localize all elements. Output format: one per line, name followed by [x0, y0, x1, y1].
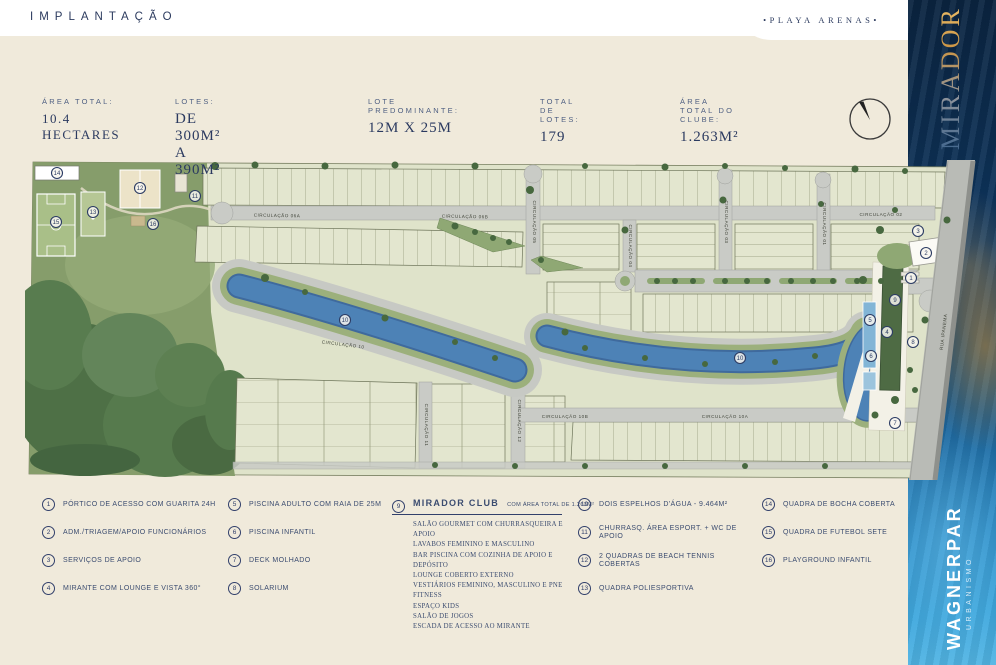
legend-item: 6 PISCINA INFANTIL: [228, 526, 384, 539]
legend-number-badge: 15: [762, 526, 775, 539]
map-marker-8: 8: [908, 337, 919, 348]
road-label: CIRCULAÇÃO 10A: [702, 413, 749, 419]
legend-item: 16 PLAYGROUND INFANTIL: [762, 554, 907, 567]
stat-value: 10.4 HECTARES: [42, 111, 120, 143]
map-marker-13: 13: [88, 207, 99, 218]
road-label: CIRCULAÇÃO 04: [628, 224, 634, 267]
map-marker-10: 10: [735, 353, 746, 364]
legend-item: 2 ADM./TRIAGEM/APOIO FUNCIONÁRIOS: [42, 526, 220, 539]
legend-item-label: QUADRA DE BOCHA COBERTA: [783, 501, 895, 509]
map-marker-1: 1: [906, 273, 917, 284]
club-feature: ESCADA DE ACESSO AO MIRANTE: [413, 622, 572, 632]
legend-number-badge: 2: [42, 526, 55, 539]
legend-item-label: SOLARIUM: [249, 585, 289, 593]
road-label: CIRCULAÇÃO 06B: [442, 213, 489, 220]
developer-name-vertical: WAGNERPAR: [944, 500, 965, 650]
map-marker-9: 9: [890, 295, 901, 306]
legend-item: 13 QUADRA POLIESPORTIVA: [578, 582, 754, 595]
legend-item-label: QUADRA POLIESPORTIVA: [599, 585, 694, 593]
project-badge-label: •PLAYA ARENAS•: [763, 15, 880, 25]
legend-item: 1 PÓRTICO DE ACESSO COM GUARITA 24H: [42, 498, 220, 511]
legend-item-label: PÓRTICO DE ACESSO COM GUARITA 24H: [63, 501, 216, 509]
map-marker-6: 6: [866, 351, 877, 362]
stat-predominant-lot: LOTE PREDOMINANTE: 12M X 25M: [368, 97, 459, 137]
map-marker-11: 11: [190, 191, 201, 202]
legend-item-label: PISCINA ADULTO COM RAIA DE 25M: [249, 501, 381, 509]
legend-item: 10 DOIS ESPELHOS D'ÁGUA - 9.464M²: [578, 498, 754, 511]
legend-item: 5 PISCINA ADULTO COM RAIA DE 25M: [228, 498, 384, 511]
legend-number-badge: 12: [578, 554, 591, 567]
stat-label: LOTE PREDOMINANTE:: [368, 97, 459, 115]
map-marker-12: 12: [135, 183, 146, 194]
legend-number-badge: 3: [42, 554, 55, 567]
legend-item: 4 MIRANTE COM LOUNGE E VISTA 360°: [42, 582, 220, 595]
club-title: MIRADOR CLUB: [413, 498, 499, 508]
site-plan-map: CIRCULAÇÃO 06ACIRCULAÇÃO 06BCIRCULAÇÃO 0…: [25, 160, 990, 480]
club-feature: ESPAÇO KIDS: [413, 602, 572, 612]
kids-pool: [863, 372, 876, 390]
road-label: CIRCULAÇÃO 01: [822, 202, 828, 245]
legend-item-label: CHURRASQ. ÁREA ESPORT. + WC DE APOIO: [599, 525, 754, 540]
developer-tagline-vertical: URBANISMO: [966, 490, 973, 630]
legend-item-label: ADM./TRIAGEM/APOIO FUNCIONÁRIOS: [63, 529, 206, 537]
svg-text:14: 14: [54, 171, 61, 177]
stat-label: ÁREA TOTAL DO CLUBE:: [680, 97, 739, 124]
club-feature: LOUNGE COBERTO EXTERNO: [413, 571, 572, 581]
stat-lot-sizes: LOTES: DE 300M² A 390M²: [175, 97, 220, 179]
legend-column-4: 10 DOIS ESPELHOS D'ÁGUA - 9.464M² 11 CHU…: [578, 498, 754, 610]
legend-item: 7 DECK MOLHADO: [228, 554, 384, 567]
legend-column-5: 14 QUADRA DE BOCHA COBERTA 15 QUADRA DE …: [762, 498, 907, 582]
legend-number-badge: 1: [42, 498, 55, 511]
club-feature-list: SALÃO GOURMET COM CHURRASQUEIRA E APOIO …: [413, 520, 572, 632]
club-feature: SALÃO DE JOGOS: [413, 612, 572, 622]
north-compass-icon: [847, 96, 893, 147]
legend-item-label: PLAYGROUND INFANTIL: [783, 557, 872, 565]
legend-item-label: SERVIÇOS DE APOIO: [63, 557, 141, 565]
legend-column-2: 5 PISCINA ADULTO COM RAIA DE 25M 6 PISCI…: [228, 498, 384, 610]
stat-value: 12M X 25M: [368, 120, 459, 137]
road-label: CIRCULAÇÃO 06A: [254, 212, 301, 219]
road-label: CIRCULAÇÃO 12: [517, 399, 523, 442]
stat-label: ÁREA TOTAL:: [42, 97, 120, 106]
road-label: CIRCULAÇÃO 05: [532, 200, 538, 243]
stat-club-area: ÁREA TOTAL DO CLUBE: 1.263M²: [680, 97, 739, 146]
map-marker-10: 10: [340, 315, 351, 326]
stat-value: DE 300M² A 390M²: [175, 111, 220, 179]
legend-item-label: DOIS ESPELHOS D'ÁGUA - 9.464M²: [599, 501, 727, 509]
club-legend-header: 9 MIRADOR CLUB COM ÁREA TOTAL DE 1.263M²: [392, 498, 562, 515]
legend-number-badge: 13: [578, 582, 591, 595]
stat-label: LOTES:: [175, 97, 220, 106]
map-marker-7: 7: [890, 418, 901, 429]
map-marker-15: 15: [51, 217, 62, 228]
legend-item: 14 QUADRA DE BOCHA COBERTA: [762, 498, 907, 511]
stat-total-lots: TOTAL DE LOTES: 179: [540, 97, 580, 146]
legend-column-1: 1 PÓRTICO DE ACESSO COM GUARITA 24H 2 AD…: [42, 498, 220, 610]
svg-text:10: 10: [737, 356, 744, 362]
page-title: IMPLANTAÇÃO: [30, 11, 178, 23]
legend-item-label: QUADRA DE FUTEBOL SETE: [783, 529, 887, 537]
stat-value: 179: [540, 129, 580, 146]
legend-number-badge: 9: [392, 500, 405, 513]
legend-item: 12 2 QUADRAS DE BEACH TENNIS COBERTAS: [578, 554, 754, 567]
brand-name-vertical: MIRADOR: [936, 0, 966, 150]
club-feature: FITNESS: [413, 591, 572, 601]
club-feature: VESTIÁRIOS FEMININO, MASCULINO E PNE: [413, 581, 572, 591]
map-marker-16: 16: [148, 219, 159, 230]
masterplan-page: MIRADOR WAGNERPAR URBANISMO IMPLANTAÇÃO …: [0, 0, 996, 665]
svg-text:15: 15: [53, 220, 60, 226]
legend-item-label: PISCINA INFANTIL: [249, 529, 316, 537]
club-feature: SALÃO GOURMET COM CHURRASQUEIRA E APOIO: [413, 520, 572, 540]
legend-number-badge: 10: [578, 498, 591, 511]
legend-number-badge: 8: [228, 582, 241, 595]
road-label: CIRCULAÇÃO 11: [424, 404, 430, 447]
map-marker-5: 5: [865, 315, 876, 326]
map-marker-14: 14: [52, 168, 63, 179]
road-label: CIRCULAÇÃO 03: [724, 200, 730, 243]
legend-column-club: 9 MIRADOR CLUB COM ÁREA TOTAL DE 1.263M²…: [392, 498, 572, 632]
legend-item: 11 CHURRASQ. ÁREA ESPORT. + WC DE APOIO: [578, 526, 754, 539]
svg-text:11: 11: [192, 194, 199, 200]
svg-text:13: 13: [90, 210, 97, 216]
legend-item-label: MIRANTE COM LOUNGE E VISTA 360°: [63, 585, 201, 593]
legend-item-label: DECK MOLHADO: [249, 557, 311, 565]
stat-total-area: ÁREA TOTAL: 10.4 HECTARES: [42, 97, 120, 143]
legend-number-badge: 7: [228, 554, 241, 567]
road-label: CIRCULAÇÃO 10B: [542, 413, 589, 419]
legend-number-badge: 4: [42, 582, 55, 595]
stat-label: TOTAL DE LOTES:: [540, 97, 580, 124]
club-feature: BAR PISCINA COM COZINHA DE APOIO E DEPÓS…: [413, 551, 572, 571]
legend-item-label: 2 QUADRAS DE BEACH TENNIS COBERTAS: [599, 553, 754, 568]
svg-text:12: 12: [137, 186, 144, 192]
svg-text:16: 16: [150, 222, 157, 228]
legend-item: 8 SOLARIUM: [228, 582, 384, 595]
map-marker-2: 2: [921, 248, 932, 259]
legend-number-badge: 6: [228, 526, 241, 539]
playground: [131, 216, 145, 226]
legend-number-badge: 14: [762, 498, 775, 511]
map-marker-3: 3: [913, 226, 924, 237]
legend-item: 15 QUADRA DE FUTEBOL SETE: [762, 526, 907, 539]
road-label: CIRCULAÇÃO 02: [859, 211, 902, 217]
map-marker-4: 4: [882, 327, 893, 338]
legend-number-badge: 5: [228, 498, 241, 511]
project-badge: •PLAYA ARENAS•: [735, 0, 908, 40]
legend-number-badge: 11: [578, 526, 591, 539]
club-feature: LAVABOS FEMININO E MASCULINO: [413, 540, 572, 550]
legend-number-badge: 16: [762, 554, 775, 567]
svg-text:10: 10: [342, 318, 349, 324]
legend-item: 3 SERVIÇOS DE APOIO: [42, 554, 220, 567]
stat-value: 1.263M²: [680, 129, 739, 146]
